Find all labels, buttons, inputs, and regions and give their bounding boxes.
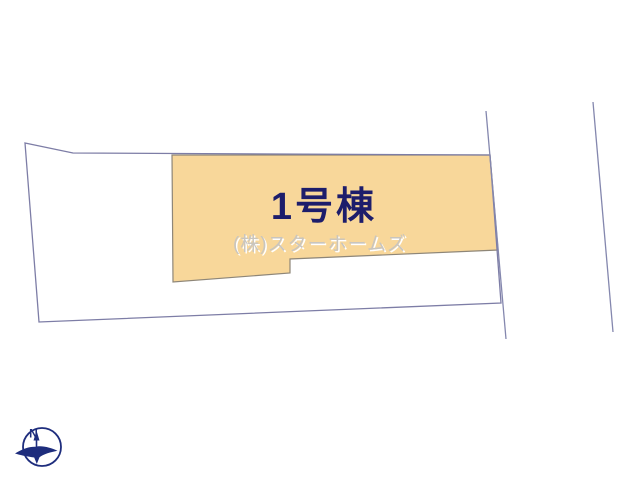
north-compass-icon: N [15, 427, 61, 467]
compass-north-label: N [29, 427, 38, 441]
building-1-label: 1号棟 [271, 186, 377, 228]
compass-bird-silhouette [15, 446, 58, 464]
site-plan-drawing: 1号棟 (株)スターホームズ (株)スターホームズ N [0, 0, 640, 480]
company-watermark: (株)スターホームズ [233, 233, 407, 255]
site-plan-canvas: 1号棟 (株)スターホームズ (株)スターホームズ N [0, 0, 640, 480]
road-edge-line-right [593, 102, 613, 332]
